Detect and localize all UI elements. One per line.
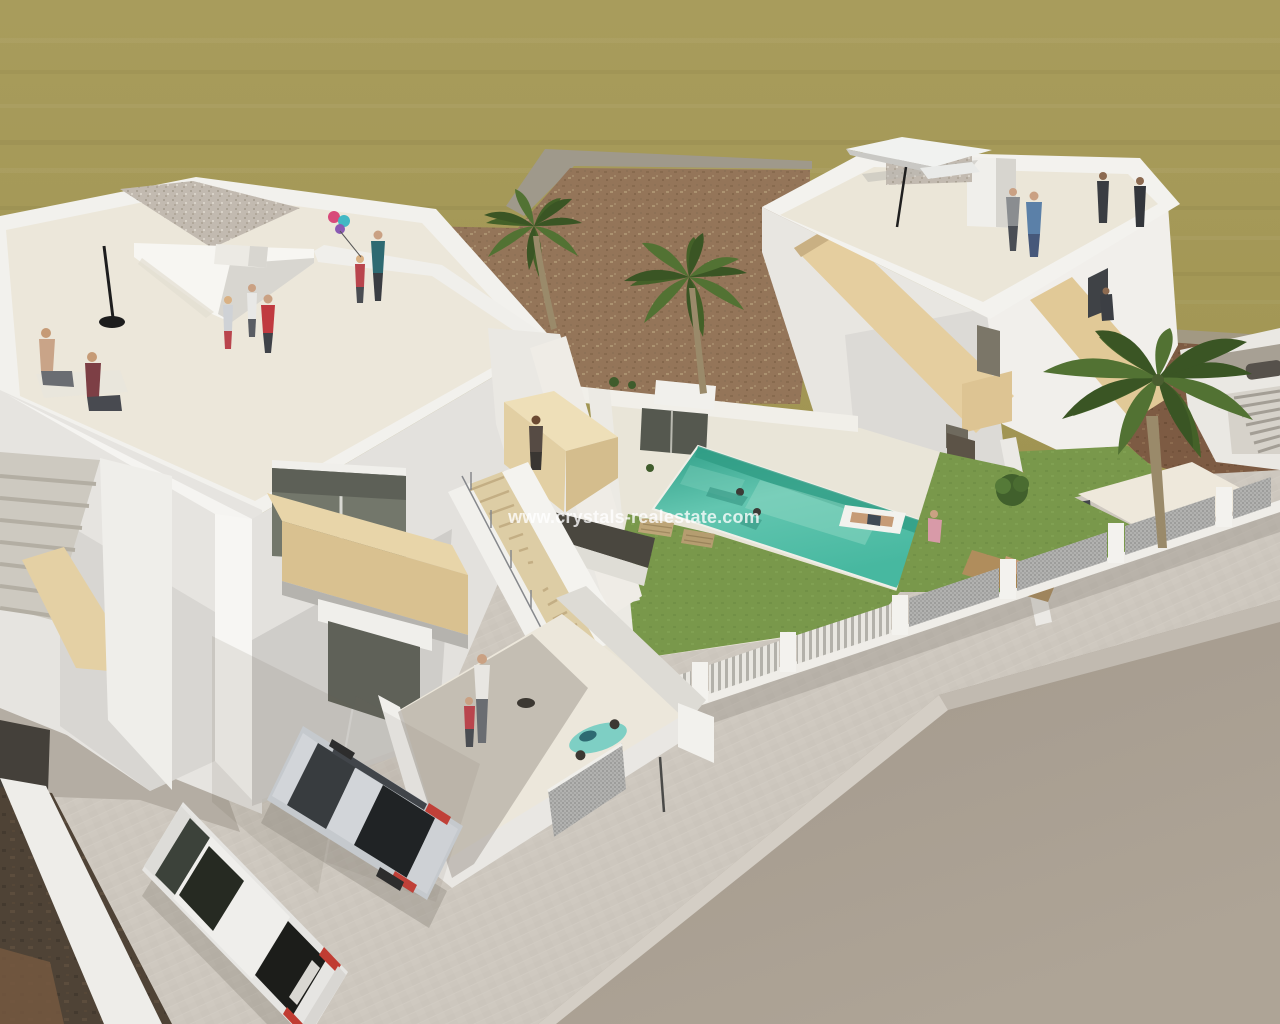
svg-text:www.crystals-realestate.com: www.crystals-realestate.com bbox=[507, 507, 760, 527]
